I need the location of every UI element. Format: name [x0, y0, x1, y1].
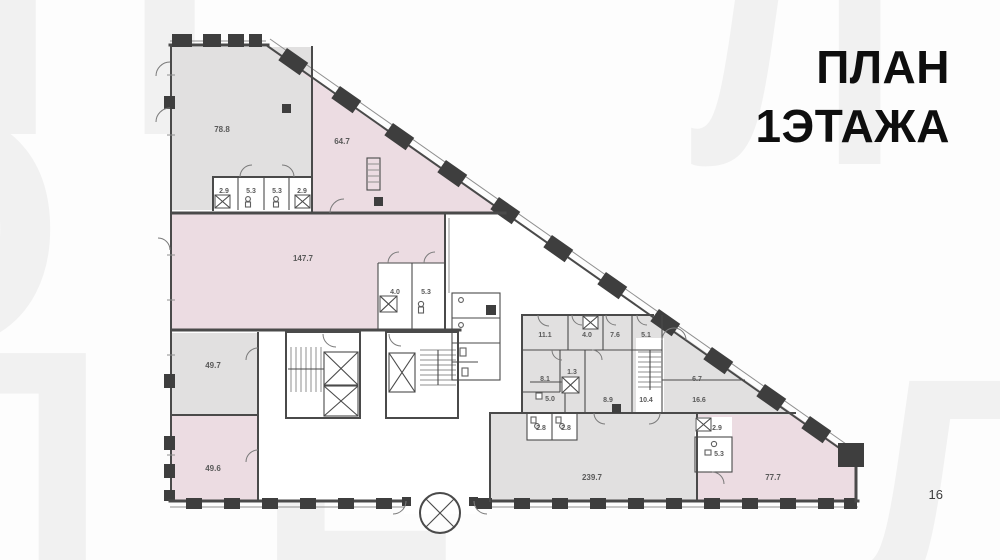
room-area-label: 78.8	[214, 125, 230, 134]
page-number: 16	[929, 487, 943, 502]
room-area-label: 239.7	[582, 473, 603, 482]
plan-title: ПЛАН 1ЭТАЖА	[755, 38, 950, 156]
page: П О Л Е Л Л	[0, 0, 1000, 560]
room-area-label: 6.7	[692, 376, 702, 383]
room-area-label: 4.0	[582, 332, 592, 339]
entrance-revolving-door	[393, 492, 487, 533]
room-area-label: 1.3	[567, 369, 577, 376]
room-area-label: 147.7	[293, 254, 314, 263]
room-area-label: 5.3	[421, 289, 431, 296]
room-area-label: 5.0	[545, 396, 555, 403]
room-area-label: 7.6	[610, 332, 620, 339]
plan-title-line2: 1ЭТАЖА	[755, 97, 950, 156]
room-area-label: 5.3	[714, 451, 724, 458]
room-area-label: 10.4	[639, 397, 653, 404]
room-area-label: 49.7	[205, 361, 221, 370]
room-area-label: 5.3	[246, 188, 256, 195]
room-area-label: 5.3	[272, 188, 282, 195]
room-area-label: 2.8	[536, 425, 546, 432]
room-area-label: 64.7	[334, 137, 350, 146]
room-area-label: 77.7	[765, 473, 781, 482]
room-area-label: 2.9	[297, 188, 307, 195]
room-area-label: 49.6	[205, 464, 221, 473]
room-area-label: 11.1	[538, 332, 551, 339]
room-area-label: 2.9	[219, 188, 229, 195]
room-area-label: 2.9	[712, 425, 722, 432]
room-area-label: 2.8	[561, 425, 571, 432]
room-area-label: 16.6	[692, 397, 706, 404]
room-area-label: 8.9	[603, 397, 613, 404]
plan-title-line1: ПЛАН	[755, 38, 950, 97]
room-area-label: 8.1	[540, 376, 550, 383]
room-area-label: 4.0	[390, 289, 400, 296]
room-area-label: 5.1	[641, 332, 651, 339]
